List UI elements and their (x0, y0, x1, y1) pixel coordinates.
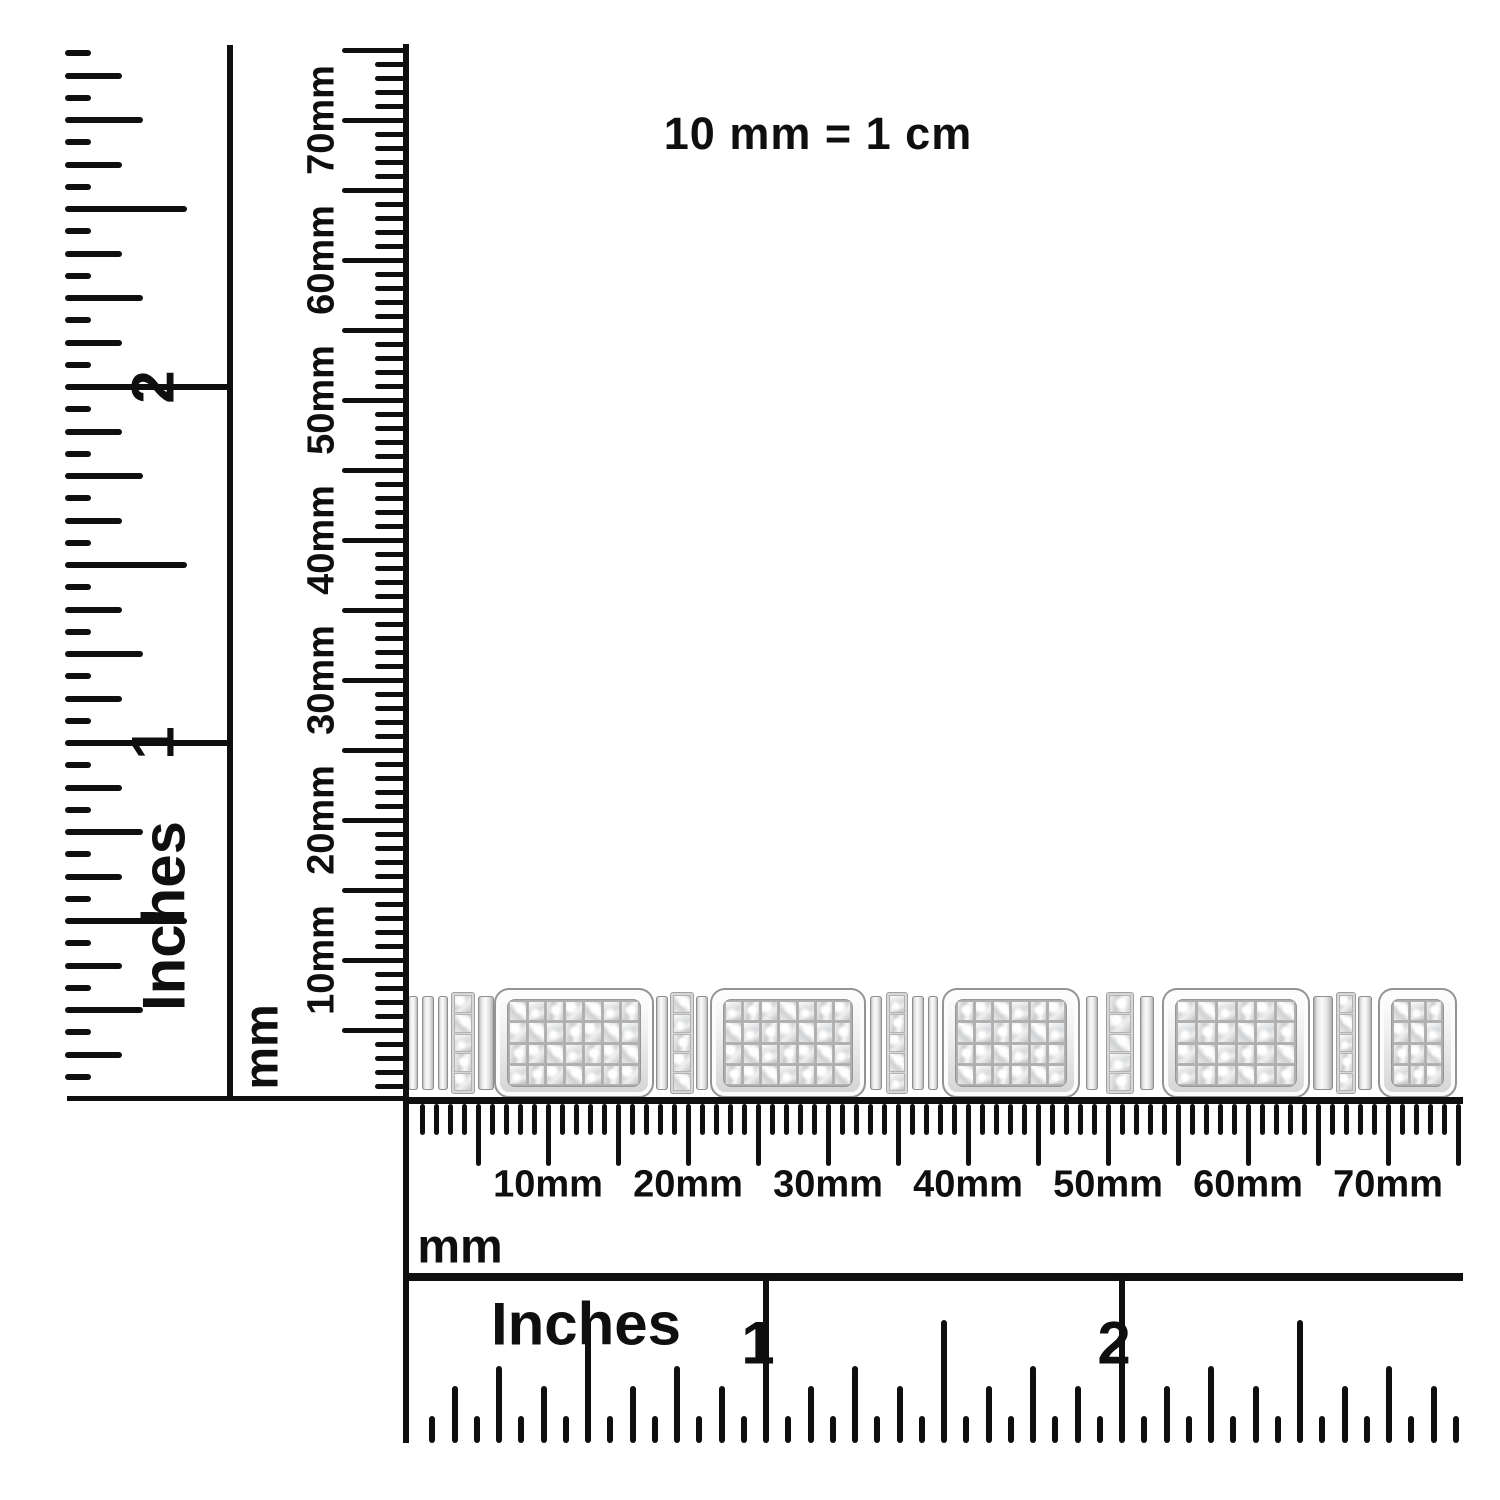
inch-tick (65, 139, 91, 145)
diamond-stone (834, 1044, 851, 1064)
mm-tick (1148, 1104, 1153, 1135)
diamond-stone (621, 1022, 639, 1042)
mm-tick (616, 1104, 621, 1166)
mm-tick (342, 1028, 405, 1033)
inch-tick (1075, 1386, 1081, 1443)
diamond-stone (1237, 1065, 1256, 1085)
left-mm-unit-label: mm (235, 1004, 290, 1089)
mm-tick (342, 468, 405, 473)
inch-tick (65, 584, 91, 590)
diamond-stone (798, 1044, 815, 1064)
mm-tick (375, 762, 405, 767)
mm-tick (375, 650, 405, 655)
inch-tick (1297, 1320, 1303, 1443)
mm-tick (686, 1104, 691, 1166)
diamond-stone (1177, 1022, 1196, 1042)
mm-tick (826, 1104, 831, 1166)
diamond-stone (834, 1065, 851, 1085)
mm-tick (342, 888, 405, 893)
inch-tick (65, 162, 122, 168)
mm-tick (375, 916, 405, 921)
diamond-stone (621, 1065, 639, 1085)
diamond-stone (993, 1065, 1010, 1085)
diamond-stone (528, 1001, 546, 1021)
diamond-stone (621, 1001, 639, 1021)
mm-tick (375, 1070, 405, 1075)
mm-tick (1036, 1104, 1041, 1166)
bottom-mm-ruler-baseline (403, 1097, 1463, 1104)
diamond-stone (1410, 1044, 1426, 1064)
diamond-stone (1256, 1022, 1275, 1042)
metal-bar-link (1358, 996, 1372, 1090)
mm-tick (375, 776, 405, 781)
metal-bar-link (1313, 996, 1333, 1090)
diamond-stone (889, 1014, 905, 1032)
diamond-stone (1011, 1022, 1028, 1042)
diamond-stone (1276, 1022, 1295, 1042)
mm-tick-label: 20mm (301, 765, 344, 875)
mm-tick (1302, 1104, 1307, 1135)
inch-tick (674, 1366, 680, 1443)
diamond-stone (1410, 1065, 1426, 1085)
mm-tick (1260, 1104, 1265, 1135)
pave-connector-link (670, 992, 694, 1094)
inch-tick (986, 1386, 992, 1443)
inch-tick (65, 940, 91, 946)
diamond-stone (761, 1001, 778, 1021)
diamond-stone (1276, 1044, 1295, 1064)
mm-tick (375, 314, 405, 319)
pave-rectangle-link (710, 988, 866, 1098)
diamond-stone (1339, 1034, 1353, 1052)
diamond-stone (1393, 1001, 1409, 1021)
diamond-stone (957, 1044, 974, 1064)
mm-tick (375, 300, 405, 305)
mm-tick (375, 104, 405, 109)
mm-tick (910, 1104, 915, 1135)
metal-bar-link (696, 996, 708, 1090)
mm-tick (1344, 1104, 1349, 1135)
inch-tick (719, 1386, 725, 1443)
inch-tick (696, 1416, 702, 1443)
diamond-stone (889, 995, 905, 1013)
diamond-stone (743, 1065, 760, 1085)
mm-tick (375, 1000, 405, 1005)
inch-tick (65, 184, 91, 190)
mm-tick (1190, 1104, 1195, 1135)
mm-tick (342, 188, 405, 193)
mm-tick (588, 1104, 593, 1135)
mm-tick (966, 1104, 971, 1166)
diamond-stone (1011, 1044, 1028, 1064)
pave-connector-link (451, 992, 475, 1094)
inch-tick (65, 95, 91, 101)
mm-tick (342, 748, 405, 753)
mm-tick-label: 30mm (301, 625, 344, 735)
mm-tick (375, 972, 405, 977)
mm-tick (342, 608, 405, 613)
mm-tick (1022, 1104, 1027, 1135)
mm-tick (938, 1104, 943, 1135)
mm-tick (375, 692, 405, 697)
mm-tick (714, 1104, 719, 1135)
diamond-stone (1177, 1044, 1196, 1064)
mm-tick-label: 10mm (301, 905, 344, 1015)
diamond-stone (761, 1022, 778, 1042)
mm-tick (375, 454, 405, 459)
mm-tick (375, 286, 405, 291)
inch-tick (65, 1029, 91, 1035)
diamond-stone (957, 1022, 974, 1042)
mm-tick (770, 1104, 775, 1135)
inch-tick (919, 1416, 925, 1443)
mm-tick (342, 538, 405, 543)
inch-tick (65, 718, 91, 724)
mm-tick (1372, 1104, 1377, 1135)
inch-tick (65, 807, 91, 813)
mm-tick (742, 1104, 747, 1135)
inch-tick (852, 1366, 858, 1443)
inch-tick (65, 651, 143, 657)
mm-tick (854, 1104, 859, 1135)
diamond-stone (975, 1065, 992, 1085)
diamond-stone (1237, 1044, 1256, 1064)
inch-tick (1186, 1416, 1192, 1443)
diamond-stone (509, 1001, 527, 1021)
mm-tick (896, 1104, 901, 1166)
mm-tick (375, 426, 405, 431)
pave-rectangle-link (942, 988, 1080, 1098)
diamond-stone (1109, 1053, 1131, 1071)
diamond-stone (528, 1044, 546, 1064)
mm-tick (448, 1104, 453, 1135)
diamond-stone (779, 1022, 796, 1042)
diamond-stone (1237, 1022, 1256, 1042)
diamond-stone (779, 1044, 796, 1064)
diamond-stone (889, 1034, 905, 1052)
diamond-stone (454, 1014, 472, 1032)
diamond-stone (725, 1044, 742, 1064)
diamond-stone (673, 1073, 691, 1091)
diamond-stone (725, 1022, 742, 1042)
diamond-stone (584, 1001, 602, 1021)
diamond-stone (509, 1022, 527, 1042)
diamond-stone (889, 1073, 905, 1091)
mm-tick-label: 50mm (1053, 1164, 1163, 1207)
mm-tick (882, 1104, 887, 1135)
inch-tick (1364, 1416, 1370, 1443)
mm-tick (375, 160, 405, 165)
diamond-stone (1177, 1001, 1196, 1021)
inch-tick (65, 117, 143, 123)
diamond-stone (798, 1022, 815, 1042)
diamond-stone (565, 1001, 583, 1021)
bottom-inches-unit-label: Inches (491, 1290, 681, 1359)
metal-bar-link (870, 996, 882, 1090)
mm-tick (840, 1104, 845, 1135)
diamond-stone (673, 1034, 691, 1052)
inch-tick (830, 1416, 836, 1443)
inch-tick (1408, 1416, 1414, 1443)
diamond-stone (546, 1022, 564, 1042)
inch-tick (897, 1386, 903, 1443)
mm-tick (1456, 1104, 1461, 1166)
mm-tick (868, 1104, 873, 1135)
mm-tick (1246, 1104, 1251, 1166)
diamond-stone (1048, 1022, 1065, 1042)
mm-tick (375, 90, 405, 95)
diamond-stone (743, 1001, 760, 1021)
inch-tick (963, 1416, 969, 1443)
diamond-stone (1197, 1001, 1216, 1021)
diamond-stone (1048, 1001, 1065, 1021)
mm-tick (1428, 1104, 1433, 1135)
mm-tick (756, 1104, 761, 1166)
mm-tick (375, 790, 405, 795)
inch-tick (1008, 1416, 1014, 1443)
mm-tick-label: 40mm (301, 485, 344, 595)
mm-tick (375, 496, 405, 501)
mm-tick-label: 60mm (1193, 1164, 1303, 1207)
inch-tick (65, 607, 122, 613)
diamond-stone (1426, 1022, 1442, 1042)
diamond-stone (1109, 1014, 1131, 1032)
inch-tick (65, 1052, 122, 1058)
mm-tick (798, 1104, 803, 1135)
diamond-stone (993, 1001, 1010, 1021)
mm-tick-label: 60mm (301, 205, 344, 315)
diamond-stone (584, 1065, 602, 1085)
pave-connector-link (1106, 992, 1134, 1094)
inch-tick (65, 762, 91, 768)
inch-tick (1342, 1386, 1348, 1443)
mm-tick (504, 1104, 509, 1135)
mm-tick (812, 1104, 817, 1135)
diamond-stone (1393, 1022, 1409, 1042)
diamond-stone (993, 1022, 1010, 1042)
diamond-stone (743, 1022, 760, 1042)
inch-tick (1208, 1366, 1214, 1443)
diamond-stone (761, 1065, 778, 1085)
inch-tick (65, 273, 91, 279)
diamond-stone (1217, 1022, 1236, 1042)
diamond-stone (1109, 1034, 1131, 1052)
inch-tick (65, 562, 187, 568)
diamond-stone (1237, 1001, 1256, 1021)
mm-tick (375, 412, 405, 417)
diamond-stone (603, 1044, 621, 1064)
inch-number-label: 2 (119, 370, 188, 403)
mm-tick (560, 1104, 565, 1135)
inch-tick (518, 1416, 524, 1443)
inch-tick (65, 673, 91, 679)
left-rulers-bottom-line (67, 1096, 409, 1101)
diamond-stone (1256, 1001, 1275, 1021)
mm-tick (342, 398, 405, 403)
pave-rectangle-link (494, 988, 654, 1098)
inch-tick (785, 1416, 791, 1443)
inch-tick (429, 1416, 435, 1443)
inch-tick (65, 629, 91, 635)
mm-tick (1176, 1104, 1181, 1166)
diamond-stone (816, 1065, 833, 1085)
scale-note: 10 mm = 1 cm (664, 108, 972, 160)
mm-tick (574, 1104, 579, 1135)
diamond-stone (1339, 1053, 1353, 1071)
inch-tick (496, 1366, 502, 1443)
metal-bar-link (478, 996, 494, 1090)
diamond-stone (546, 1001, 564, 1021)
diamond-stone (1256, 1044, 1275, 1064)
diamond-stone (1197, 1044, 1216, 1064)
mm-tick (1232, 1104, 1237, 1135)
mm-tick (342, 958, 405, 963)
inch-tick (65, 985, 91, 991)
diamond-stone (816, 1022, 833, 1042)
inch-tick (65, 206, 187, 212)
diamond-stone (1030, 1022, 1047, 1042)
inch-tick (65, 295, 143, 301)
mm-tick (1078, 1104, 1083, 1135)
mm-tick (980, 1104, 985, 1135)
diamond-stone (834, 1001, 851, 1021)
inch-number-label: 2 (1097, 1309, 1130, 1378)
mm-tick-label: 40mm (913, 1164, 1023, 1207)
mm-tick (342, 818, 405, 823)
inch-tick (65, 473, 143, 479)
mm-tick (420, 1104, 425, 1135)
diamond-stone (454, 1073, 472, 1091)
mm-tick (375, 986, 405, 991)
inch-tick (65, 963, 122, 969)
mm-tick-label: 50mm (301, 345, 344, 455)
inch-tick (1386, 1366, 1392, 1443)
diamond-stone (584, 1044, 602, 1064)
diamond-stone (816, 1001, 833, 1021)
mm-tick (375, 594, 405, 599)
inch-tick (1253, 1386, 1259, 1443)
inch-tick (1097, 1416, 1103, 1443)
mm-tick (375, 132, 405, 137)
diamond-stone (1048, 1065, 1065, 1085)
diamond-stone (1030, 1044, 1047, 1064)
diamond-stone (1048, 1044, 1065, 1064)
mm-tick (994, 1104, 999, 1135)
diamond-stone (1426, 1001, 1442, 1021)
diamond-stone (603, 1065, 621, 1085)
diamond-stone (1109, 1073, 1131, 1091)
inch-tick (652, 1416, 658, 1443)
measurement-diagram: 10 mm = 1 cm 12 10mm20mm30mm40mm50mm60mm… (0, 0, 1500, 1500)
mm-tick (1092, 1104, 1097, 1135)
mm-tick (1274, 1104, 1279, 1135)
diamond-stone (1217, 1001, 1236, 1021)
mm-tick (375, 510, 405, 515)
inch-tick (563, 1416, 569, 1443)
mm-tick-label: 20mm (633, 1164, 743, 1207)
diamond-stone (1217, 1065, 1236, 1085)
mm-tick (658, 1104, 663, 1135)
mm-tick (375, 706, 405, 711)
inch-tick (65, 50, 91, 56)
inch-tick (65, 696, 122, 702)
diamond-stone (975, 1001, 992, 1021)
diamond-stone (546, 1065, 564, 1085)
diamond-stone (975, 1044, 992, 1064)
mm-tick (375, 202, 405, 207)
mm-tick (518, 1104, 523, 1135)
diamond-stone (1177, 1065, 1196, 1085)
diamond-stone (1276, 1065, 1295, 1085)
pave-stone-grid (507, 999, 641, 1087)
inch-tick (741, 1416, 747, 1443)
bracelet-photo (408, 986, 1457, 1100)
mm-tick (700, 1104, 705, 1135)
mm-tick (546, 1104, 551, 1166)
inch-tick (874, 1416, 880, 1443)
mm-tick (1358, 1104, 1363, 1135)
diamond-stone (1339, 1073, 1353, 1091)
diamond-stone (546, 1044, 564, 1064)
mm-tick (375, 846, 405, 851)
mm-tick (375, 930, 405, 935)
mm-tick (375, 62, 405, 67)
bottom-mm-unit-label: mm (417, 1220, 502, 1275)
mm-tick (462, 1104, 467, 1135)
mm-tick (532, 1104, 537, 1135)
pave-connector-link (886, 992, 908, 1094)
diamond-stone (1197, 1022, 1216, 1042)
mm-tick-label: 70mm (1333, 1164, 1443, 1207)
inch-tick (65, 340, 122, 346)
diamond-stone (1393, 1065, 1409, 1085)
diamond-stone (1339, 995, 1353, 1013)
inch-number-label: 1 (741, 1309, 774, 1378)
mm-tick (375, 580, 405, 585)
mm-tick (1162, 1104, 1167, 1135)
metal-bar-link (422, 996, 434, 1090)
inch-tick (65, 495, 91, 501)
mm-tick (1400, 1104, 1405, 1135)
inch-tick (1164, 1386, 1170, 1443)
diamond-stone (603, 1022, 621, 1042)
mm-tick (375, 804, 405, 809)
mm-tick (375, 370, 405, 375)
pave-connector-link (1336, 992, 1356, 1094)
mm-tick (375, 552, 405, 557)
mm-tick (375, 524, 405, 529)
inch-tick (808, 1386, 814, 1443)
diamond-stone (565, 1044, 583, 1064)
inch-tick (630, 1386, 636, 1443)
diamond-stone (725, 1065, 742, 1085)
pave-stone-grid (1391, 999, 1444, 1087)
inch-tick (65, 451, 91, 457)
mm-tick (1008, 1104, 1013, 1135)
diamond-stone (779, 1001, 796, 1021)
inch-tick (452, 1386, 458, 1443)
diamond-stone (957, 1065, 974, 1085)
mm-tick (1218, 1104, 1223, 1135)
mm-tick (375, 356, 405, 361)
diamond-stone (1426, 1065, 1442, 1085)
diamond-stone (1197, 1065, 1216, 1085)
diamond-stone (603, 1001, 621, 1021)
mm-tick (952, 1104, 957, 1135)
mm-tick (728, 1104, 733, 1135)
mm-tick (1386, 1104, 1391, 1166)
mm-tick (630, 1104, 635, 1135)
